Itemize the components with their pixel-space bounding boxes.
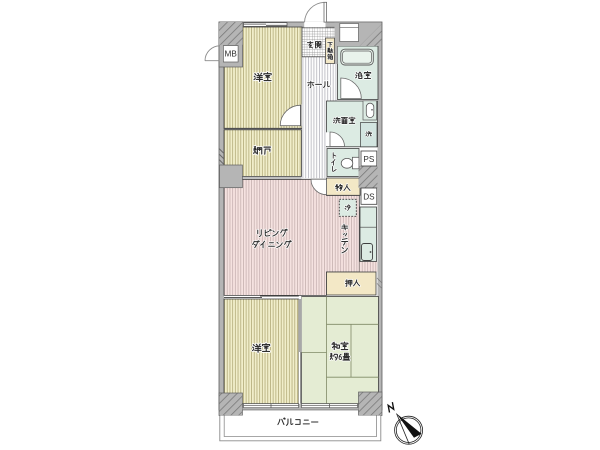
svg-text:MB: MB <box>225 50 238 59</box>
svg-text:DS: DS <box>363 192 375 201</box>
svg-text:PS: PS <box>363 155 374 164</box>
